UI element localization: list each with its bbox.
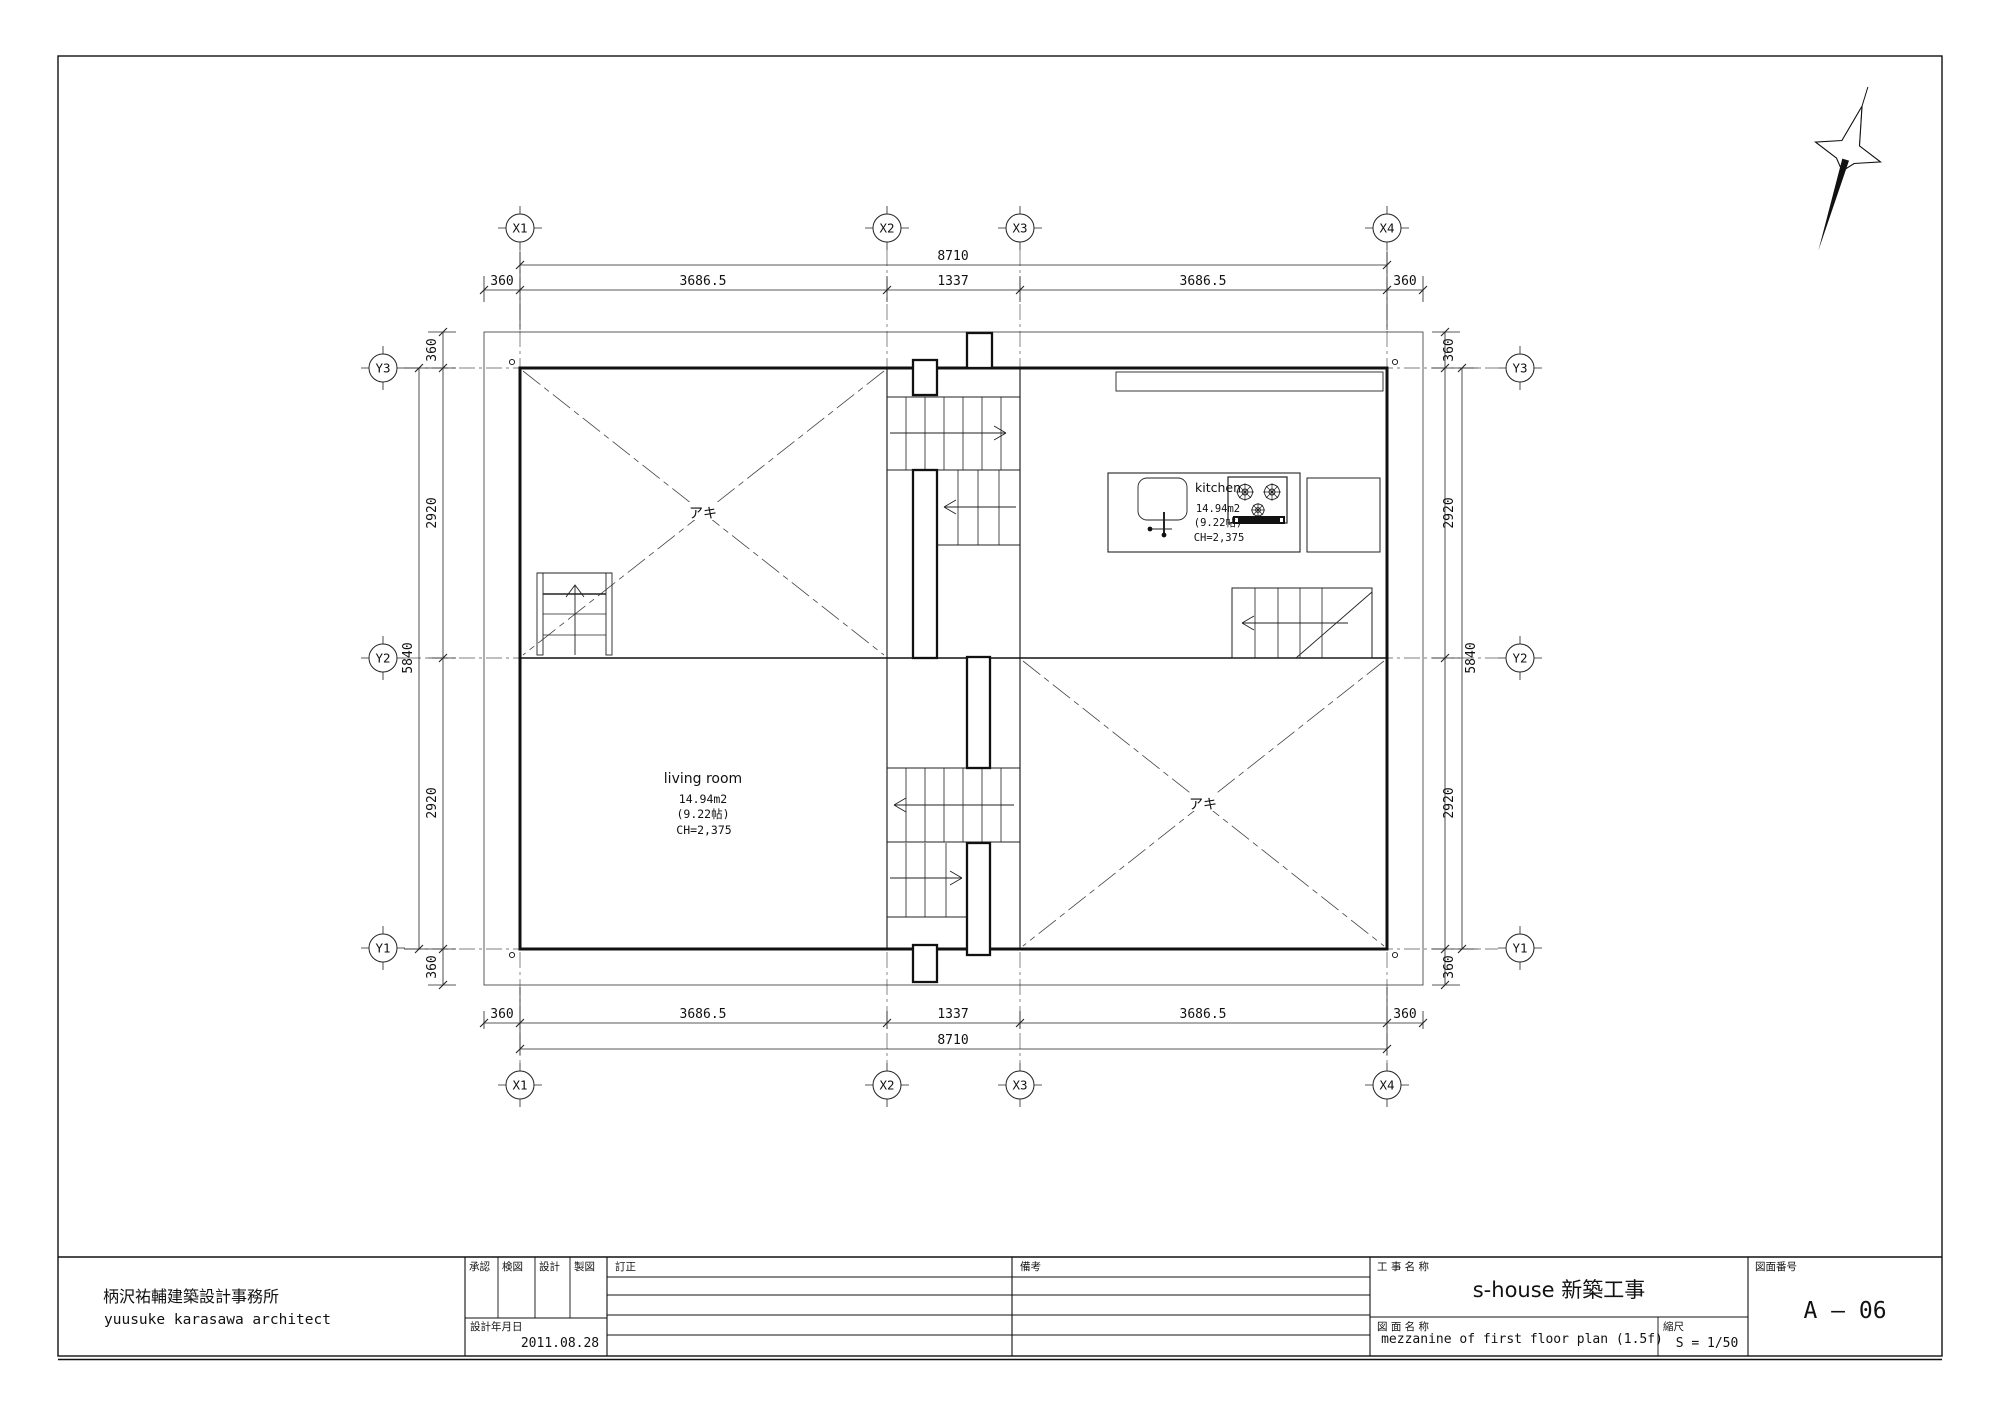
remarks-label: 備考 xyxy=(1020,1260,1041,1273)
grid-x1-top: X1 xyxy=(512,221,527,236)
burner-3 xyxy=(1251,503,1265,517)
dim-left-1: 2920 xyxy=(425,497,440,528)
architect-name-jp: 柄沢祐輔建築設計事務所 xyxy=(103,1287,279,1306)
grid-y3-left: Y3 xyxy=(375,361,390,376)
stair-up-arrow xyxy=(566,585,584,655)
dim-left-0: 360 xyxy=(425,338,440,361)
kitchen-ceiling: CH=2,375 xyxy=(1194,532,1245,544)
grid-y1-right: Y1 xyxy=(1512,941,1527,956)
scale-label: 縮尺 xyxy=(1663,1320,1685,1333)
drawing-number-label: 図面番号 xyxy=(1755,1261,1797,1273)
drawing-name: mezzanine of first floor plan (1.5f) xyxy=(1381,1332,1663,1347)
stair-arrow-right-upper xyxy=(890,426,1006,440)
floor-plan-drawing: アキ アキ xyxy=(0,0,2000,1414)
drafting-label: 製図 xyxy=(574,1260,595,1273)
drawing-sheet: アキ アキ xyxy=(0,0,2000,1414)
living-room-text: living room 14.94m2 (9.22帖) CH=2,375 xyxy=(664,771,742,837)
dim-top-4: 360 xyxy=(1393,274,1416,289)
living-room-tatami: (9.22帖) xyxy=(676,807,729,821)
grid-x2-bottom: X2 xyxy=(879,1078,894,1093)
title-block-text: 柄沢祐輔建築設計事務所 yuusuke karasawa architect 承… xyxy=(103,1260,1887,1351)
dim-bottom-3: 3686.5 xyxy=(1180,1007,1227,1022)
grid-x2-top: X2 xyxy=(879,221,894,236)
grid-bubble-labels: X1 X2 X3 X4 X1 X2 X3 X4 Y3 Y2 Y1 Y3 Y2 Y… xyxy=(375,221,1527,1093)
living-room-name: living room xyxy=(664,771,742,787)
dim-total-height-right: 5840 xyxy=(1464,642,1479,673)
grid-x3-bottom: X3 xyxy=(1012,1078,1027,1093)
living-room-area: 14.94m2 xyxy=(679,792,727,806)
dimension-lines xyxy=(404,252,1478,1055)
kitchen-area: 14.94m2 xyxy=(1196,503,1240,515)
grid-y2-right: Y2 xyxy=(1512,651,1527,666)
north-compass-icon xyxy=(1785,77,1900,260)
dim-total-width-top: 8710 xyxy=(937,249,968,264)
dim-top-1: 3686.5 xyxy=(680,274,727,289)
grid-x1-bottom: X1 xyxy=(512,1078,527,1093)
dim-right-2: 2920 xyxy=(1442,787,1457,818)
stair-arrow-left-upper xyxy=(944,500,1016,514)
architect-name-en: yuusuke karasawa architect xyxy=(104,1312,331,1328)
central-stairs xyxy=(887,397,1020,917)
dim-top-3: 3686.5 xyxy=(1180,274,1227,289)
sheet-border xyxy=(58,56,1942,1360)
void-label-upper: アキ xyxy=(689,506,717,522)
grid-y3-right: Y3 xyxy=(1512,361,1527,376)
design-date-label: 設計年月日 xyxy=(470,1320,523,1333)
design-label: 設計 xyxy=(539,1260,560,1273)
dim-bottom-0: 360 xyxy=(490,1007,513,1022)
kitchen-wall-counter xyxy=(1116,372,1383,391)
compass-needle xyxy=(1815,159,1849,252)
project-label: 工 事 名 称 xyxy=(1377,1260,1430,1273)
living-room-ceiling: CH=2,375 xyxy=(676,823,731,837)
grid-y2-left: Y2 xyxy=(375,651,390,666)
kitchen-stair xyxy=(1232,588,1372,658)
kitchen-stair-arrow xyxy=(1242,616,1348,630)
grid-x4-top: X4 xyxy=(1379,221,1394,236)
kitchen-faucet xyxy=(1148,512,1172,537)
dim-right-0: 360 xyxy=(1442,338,1457,361)
dim-top-2: 1337 xyxy=(937,274,968,289)
grid-bubbles xyxy=(361,206,1542,1107)
dim-left-3: 360 xyxy=(425,955,440,978)
dim-left-2: 2920 xyxy=(425,787,440,818)
dim-total-width-bottom: 8710 xyxy=(937,1033,968,1048)
grid-x4-bottom: X4 xyxy=(1379,1078,1394,1093)
grid-y1-left: Y1 xyxy=(375,941,390,956)
scale-value: S = 1/50 xyxy=(1676,1336,1739,1351)
dim-bottom-1: 3686.5 xyxy=(680,1007,727,1022)
drawing-number: A — 06 xyxy=(1803,1298,1886,1324)
burner-2 xyxy=(1263,483,1281,501)
stair-arrow-right-lower xyxy=(890,871,962,885)
dim-top-0: 360 xyxy=(490,274,513,289)
kitchen-side-counter xyxy=(1307,478,1380,552)
project-name: s-house 新築工事 xyxy=(1473,1278,1646,1302)
upper-left-stair xyxy=(537,573,612,655)
dim-bottom-2: 1337 xyxy=(937,1007,968,1022)
design-date-value: 2011.08.28 xyxy=(521,1336,599,1351)
kitchen-sink xyxy=(1138,478,1187,520)
check-label: 検図 xyxy=(502,1260,523,1273)
kitchen-text: kitchen 14.94m2 (9.22帖) CH=2,375 xyxy=(1194,480,1245,544)
approval-label: 承認 xyxy=(469,1260,490,1273)
revision-label: 訂正 xyxy=(615,1260,636,1273)
dim-bottom-4: 360 xyxy=(1393,1007,1416,1022)
kitchen-tatami: (9.22帖) xyxy=(1194,516,1242,529)
stair-arrow-left-lower xyxy=(894,798,1014,812)
void-label-lower: アキ xyxy=(1189,797,1217,813)
dim-right-1: 2920 xyxy=(1442,497,1457,528)
dim-right-3: 360 xyxy=(1442,955,1457,978)
kitchen-name: kitchen xyxy=(1195,480,1241,495)
grid-x3-top: X3 xyxy=(1012,221,1027,236)
kitchen-fixtures xyxy=(1108,372,1383,658)
